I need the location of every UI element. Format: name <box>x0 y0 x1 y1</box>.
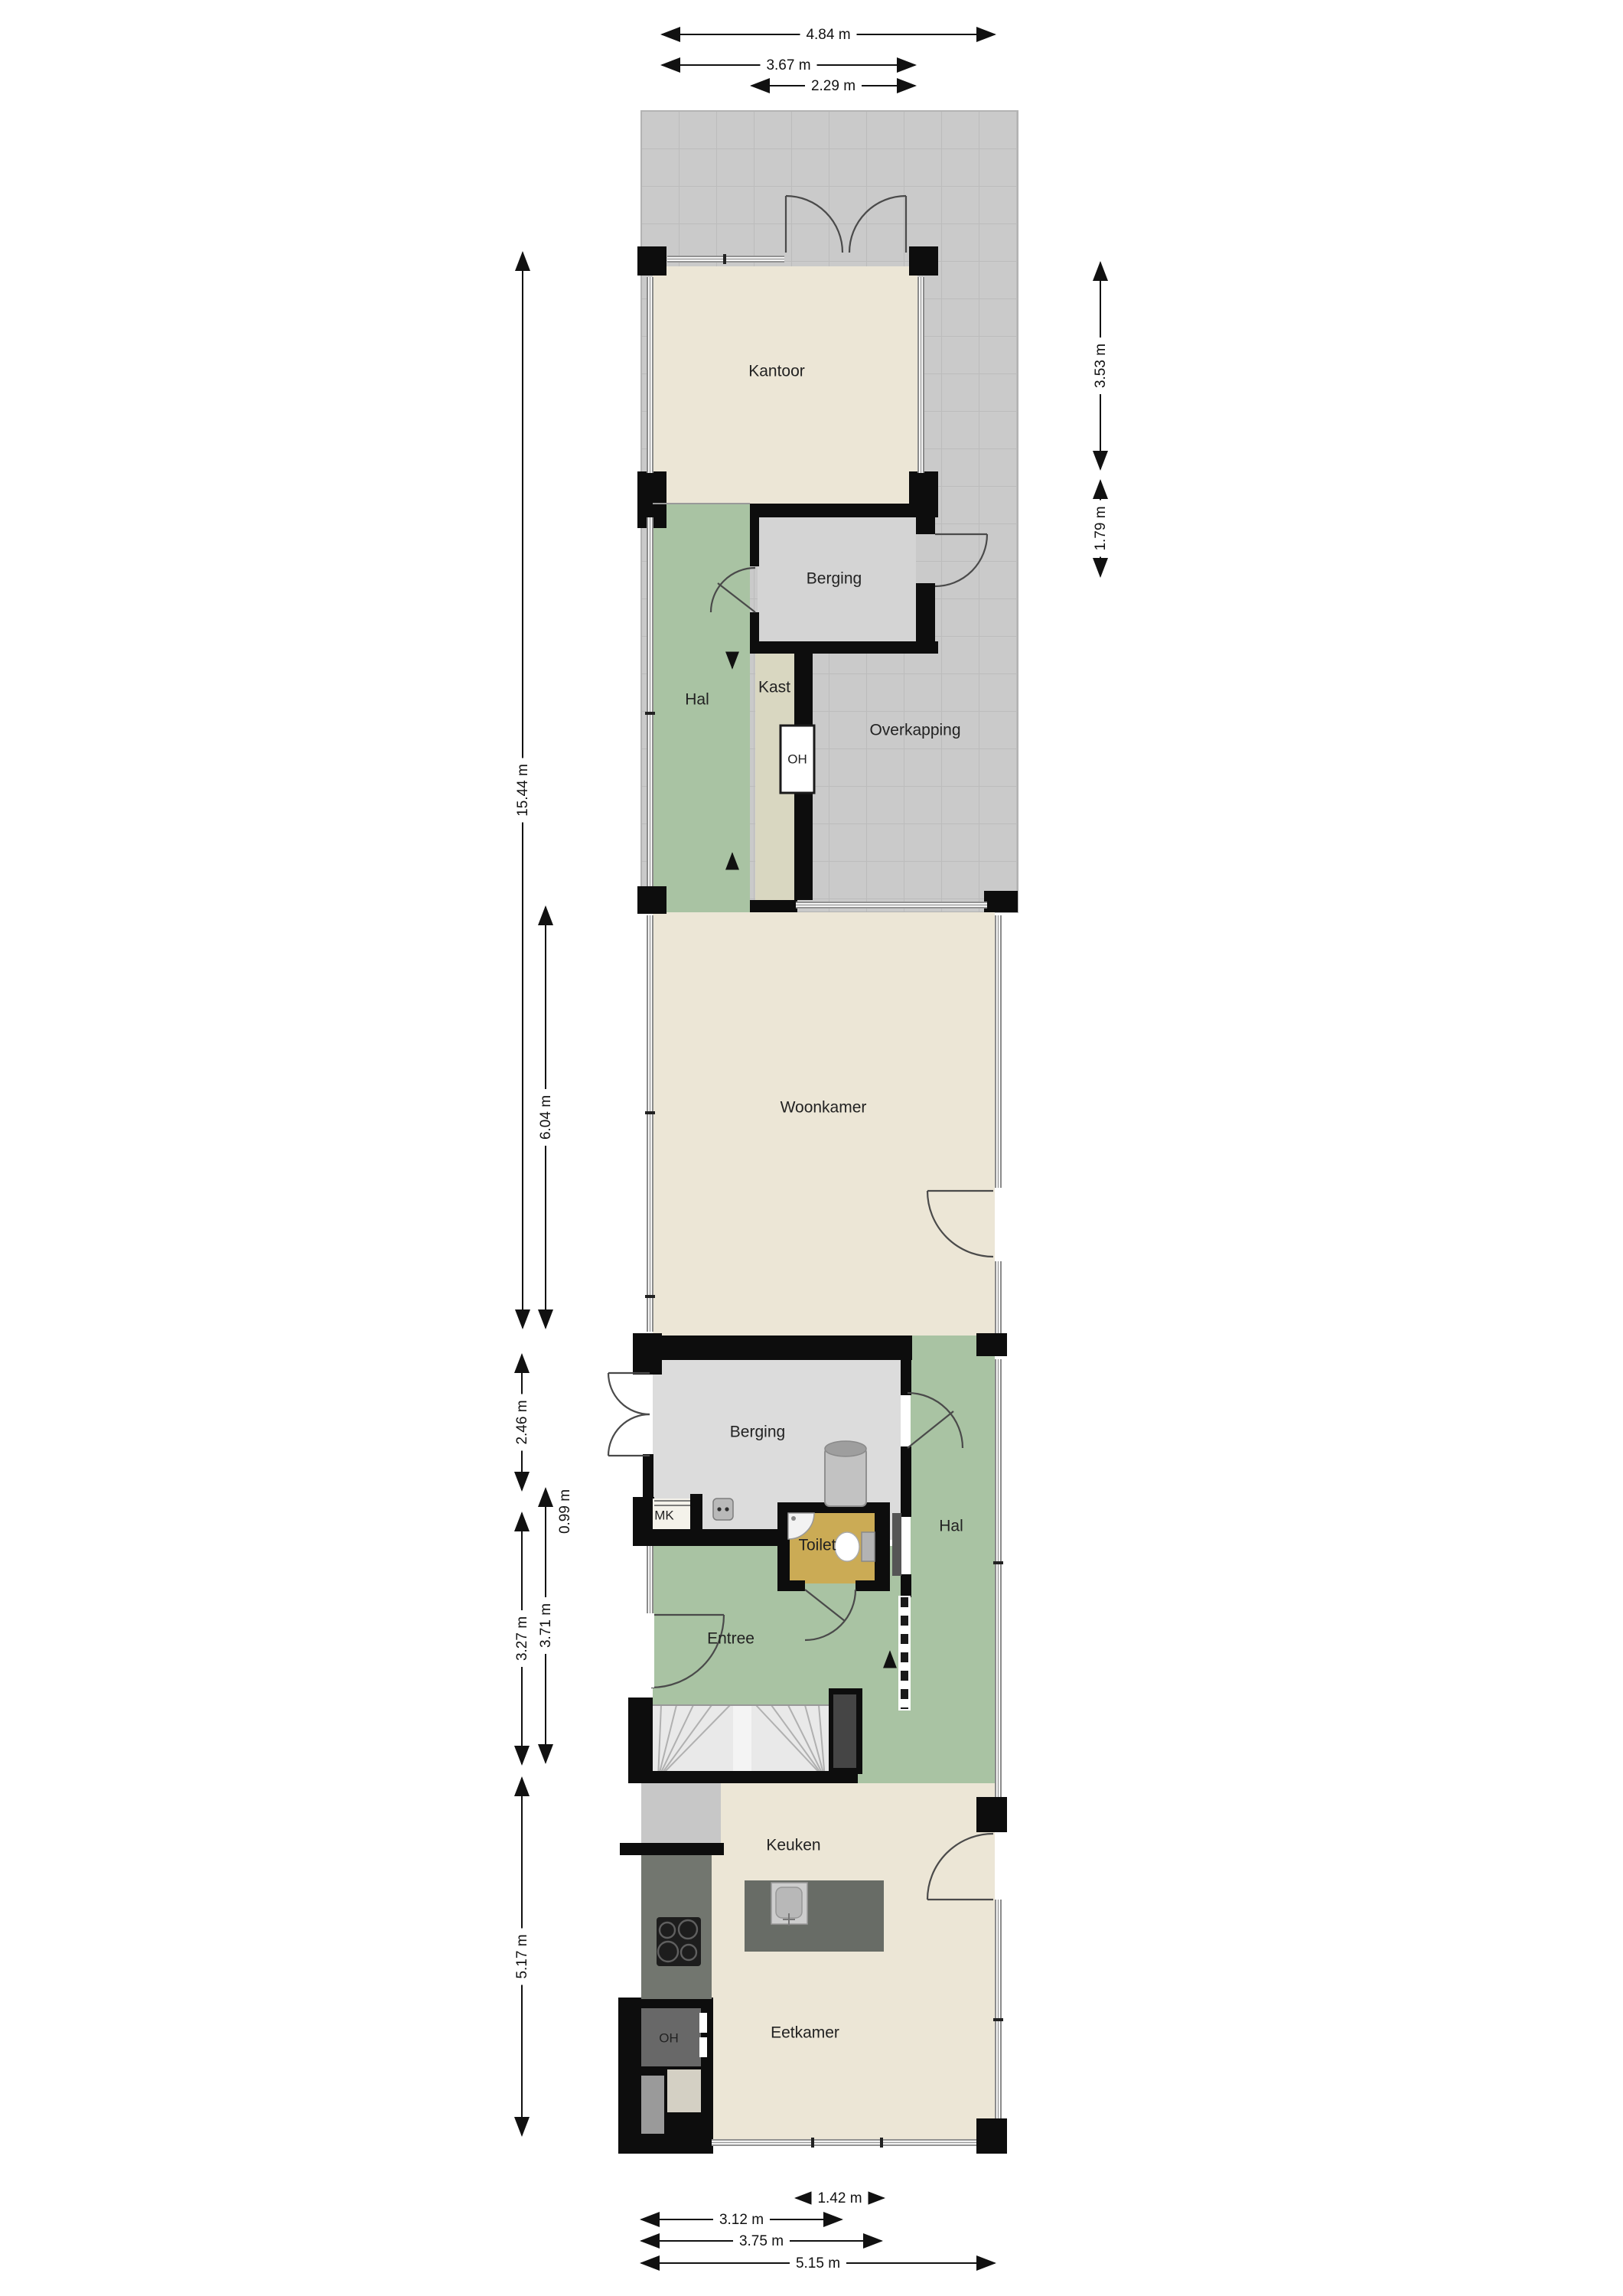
dim-3.71m: 3.71 m <box>535 1489 556 1763</box>
socket-icon <box>713 1499 733 1520</box>
svg-text:4.84 m: 4.84 m <box>806 27 850 43</box>
room-label-woonkamer: Woonkamer <box>781 1099 867 1117</box>
room-label-toilet: Toilet <box>798 1537 836 1554</box>
stair-shaft <box>833 1694 856 1768</box>
dim-6.04m: 6.04 m <box>535 907 556 1328</box>
sliding-door <box>898 1596 911 1711</box>
cooktop-icon <box>657 1917 701 1966</box>
pocket-door <box>892 1513 901 1576</box>
svg-text:3.71 m: 3.71 m <box>538 1603 554 1648</box>
svg-text:2.29 m: 2.29 m <box>811 78 855 94</box>
room-label-kast: Kast <box>758 679 790 696</box>
kitchen-island <box>745 1880 884 1952</box>
svg-text:2.46 m: 2.46 m <box>514 1400 530 1444</box>
svg-text:3.75 m: 3.75 m <box>739 2233 784 2249</box>
room-label-berging-low: Berging <box>730 1424 785 1441</box>
floorplan-canvas: KantoorBergingHalKastOHOverkappingWoonka… <box>0 0 1623 2296</box>
room-label-oh-top: OH <box>787 752 807 766</box>
room-label-hal-low: Hal <box>939 1518 963 1535</box>
room-label-entree: Entree <box>707 1630 754 1648</box>
svg-text:1.42 m: 1.42 m <box>817 2190 862 2206</box>
svg-text:5.15 m: 5.15 m <box>796 2255 840 2272</box>
svg-text:5.17 m: 5.17 m <box>514 1934 530 1978</box>
room-hal-low <box>911 1336 995 1829</box>
shaft-cell-a <box>641 2076 664 2134</box>
staircase <box>653 1705 830 1779</box>
svg-text:1.79 m: 1.79 m <box>1093 506 1109 550</box>
svg-text:3.27 m: 3.27 m <box>514 1616 530 1661</box>
dim-4.84m: 4.84 m <box>662 24 995 45</box>
floorplan-svg: KantoorBergingHalKastOHOverkappingWoonka… <box>0 0 1623 2296</box>
room-label-berging-top: Berging <box>807 570 862 588</box>
dim-5.15m: 5.15 m <box>641 2252 995 2274</box>
room-label-eetkamer: Eetkamer <box>771 2024 839 2042</box>
room-kantoor <box>653 266 917 504</box>
dim-3.12m: 3.12 m <box>641 2209 842 2230</box>
shaft-cell-b <box>667 2069 701 2112</box>
svg-text:6.04 m: 6.04 m <box>538 1095 554 1140</box>
floorplan-page: KantoorBergingHalKastOHOverkappingWoonka… <box>0 0 1623 2296</box>
room-label-kantoor: Kantoor <box>748 363 805 380</box>
dim-15.44m: 15.44 m <box>512 253 533 1328</box>
room-label-hal-top: Hal <box>685 691 709 709</box>
dim-3.67m: 3.67 m <box>662 54 915 76</box>
toilet-icon <box>835 1532 875 1561</box>
understair <box>641 1783 721 1844</box>
dim-3.75m: 3.75 m <box>641 2230 882 2252</box>
room-keuken-eetkamer <box>712 1783 995 2141</box>
dim-5.17m: 5.17 m <box>511 1778 533 2135</box>
dim-3.27m: 3.27 m <box>511 1513 533 1764</box>
svg-text:3.12 m: 3.12 m <box>719 2212 764 2228</box>
room-label-mk: MK <box>654 1508 674 1522</box>
svg-text:3.67 m: 3.67 m <box>766 57 810 73</box>
dim-0.99m: 0.99 m <box>554 1483 575 1540</box>
dim-1.79m: 1.79 m <box>1090 481 1111 576</box>
dim-3.53m: 3.53 m <box>1090 263 1111 469</box>
svg-text:0.99 m: 0.99 m <box>557 1489 573 1534</box>
dim-1.42m: 1.42 m <box>796 2187 884 2209</box>
dim-2.46m: 2.46 m <box>511 1355 533 1490</box>
svg-text:15.44 m: 15.44 m <box>515 764 531 817</box>
room-label-oh-low: OH <box>659 2030 679 2045</box>
room-label-keuken: Keuken <box>766 1837 820 1854</box>
boiler-icon <box>825 1441 866 1506</box>
dim-2.29m: 2.29 m <box>751 75 915 96</box>
room-label-overkapping: Overkapping <box>869 722 960 739</box>
room-passage <box>855 1707 911 1785</box>
front-door-gap <box>645 1613 654 1688</box>
room-woonkamer <box>653 912 995 1336</box>
svg-text:3.53 m: 3.53 m <box>1093 344 1109 388</box>
